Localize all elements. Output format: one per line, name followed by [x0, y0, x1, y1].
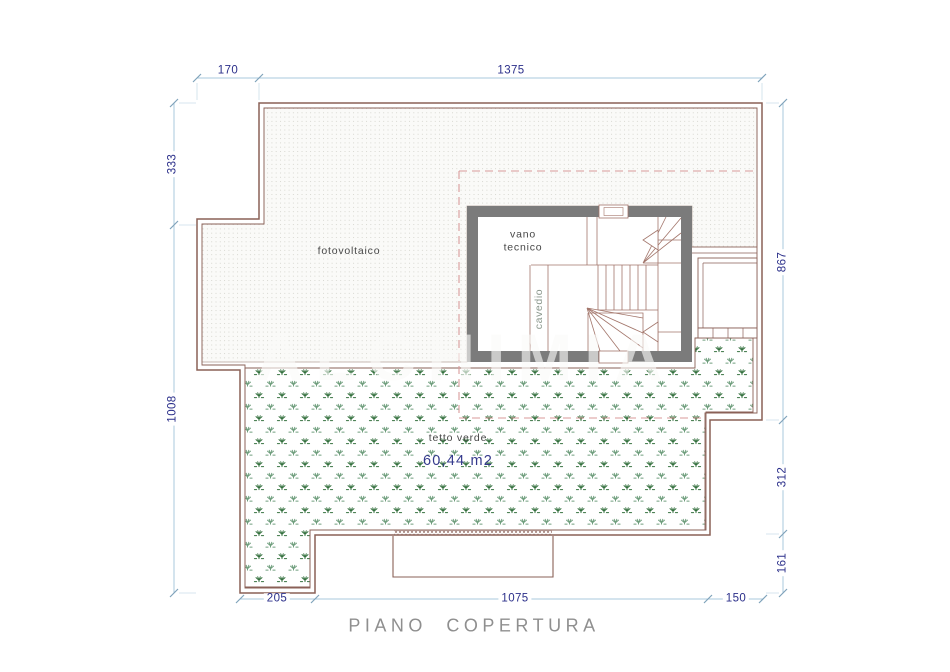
- dimension-right-middle: 312: [777, 464, 789, 490]
- dimension-right-lower: 161: [777, 550, 789, 576]
- dimension-right-upper: 867: [777, 249, 789, 275]
- dimension-bottom-right: 150: [723, 593, 749, 605]
- label-tetto-verde-area: 60,44 m2: [423, 453, 493, 469]
- label-fotovoltaico: fotovoltaico: [318, 245, 381, 257]
- label-tetto-verde: tetto verde: [429, 432, 487, 444]
- right-terrace: [698, 258, 757, 338]
- dimension-top-left: 170: [215, 65, 241, 77]
- floor-plan-canvas: ALCHIMIA 170 1375 333 1008 867 312 161 2…: [0, 0, 950, 672]
- dimension-left-lower: 1008: [167, 392, 179, 425]
- lower-canopy: [393, 530, 553, 578]
- dimension-bottom-main: 1075: [498, 593, 531, 605]
- roof-hatch-opening-top: [599, 205, 628, 218]
- page-title: PIANO COPERTURA: [348, 616, 599, 637]
- dimension-top-main: 1375: [494, 65, 527, 77]
- label-cavedio: cavedio: [533, 289, 545, 329]
- watermark: ALCHIMIA: [256, 319, 675, 395]
- label-vano-tecnico: vano tecnico: [494, 228, 552, 253]
- dimension-left-upper: 333: [167, 151, 179, 177]
- dimension-bottom-left: 205: [264, 593, 290, 605]
